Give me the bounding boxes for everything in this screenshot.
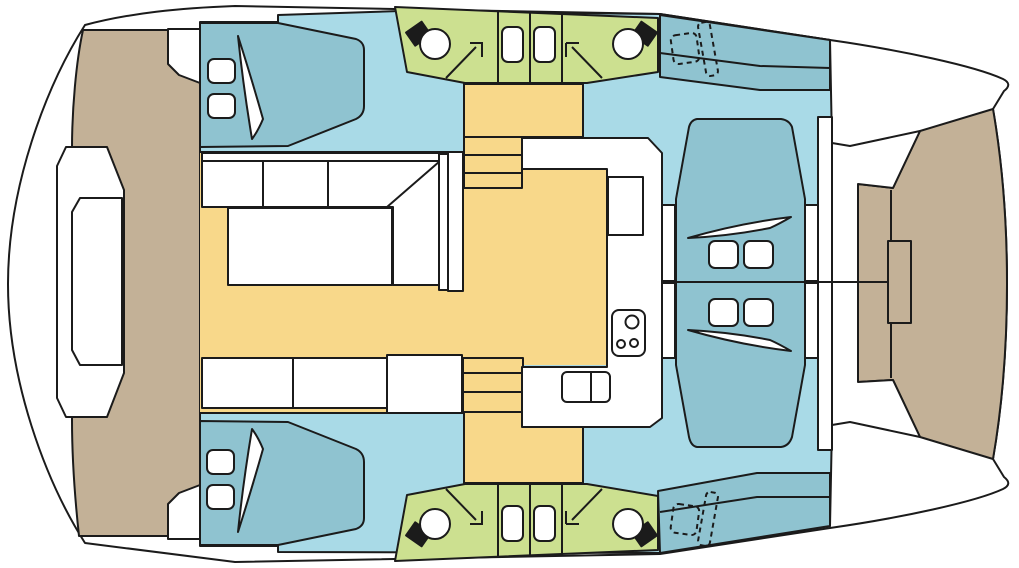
galley-sink: [562, 372, 610, 402]
toilet-bowl: [420, 29, 450, 59]
berth-side-step-port-left: [662, 205, 675, 281]
boat-floor-plan: [0, 0, 1019, 568]
berth-side-step-port-right: [804, 205, 818, 281]
pillow: [744, 241, 773, 268]
salon-cabinet-starboard: [387, 355, 462, 413]
stove-burner-large: [626, 316, 639, 329]
galley-fridge: [608, 177, 643, 235]
salon-partition-inner: [439, 154, 448, 290]
stairs-port: [464, 137, 522, 188]
anchor-locker-hatch: [888, 241, 911, 323]
pillow: [709, 299, 738, 326]
salon-table: [228, 208, 392, 285]
pillow: [208, 59, 235, 83]
salon-center-floor: [463, 169, 607, 365]
toilet-bowl: [613, 29, 643, 59]
bed-forward-starboard: [676, 282, 805, 447]
berth-side-step-starboard-right: [804, 283, 818, 358]
deck-plan-svg: [0, 0, 1019, 568]
washbasin: [502, 506, 523, 541]
washbasin: [534, 27, 555, 62]
cockpit-bench-inner: [72, 198, 122, 365]
stairs-starboard: [463, 358, 523, 412]
washbasin: [502, 27, 523, 62]
pillow: [744, 299, 773, 326]
stove-burner-small-left: [617, 340, 625, 348]
pillow: [207, 485, 234, 509]
salon-bench-starboard: [202, 358, 387, 408]
pillow: [709, 241, 738, 268]
toilet-bowl: [420, 509, 450, 539]
forward-crossbeam: [818, 117, 832, 450]
corridor-port: [464, 84, 583, 137]
salon-partition-outer: [448, 152, 463, 291]
berth-side-step-starboard-left: [662, 283, 675, 358]
stove-burner-small-right: [630, 339, 638, 347]
washbasin: [534, 506, 555, 541]
toilet-bowl: [613, 509, 643, 539]
pillow: [207, 450, 234, 474]
pillow: [208, 94, 235, 118]
bed-forward-port: [676, 119, 805, 282]
